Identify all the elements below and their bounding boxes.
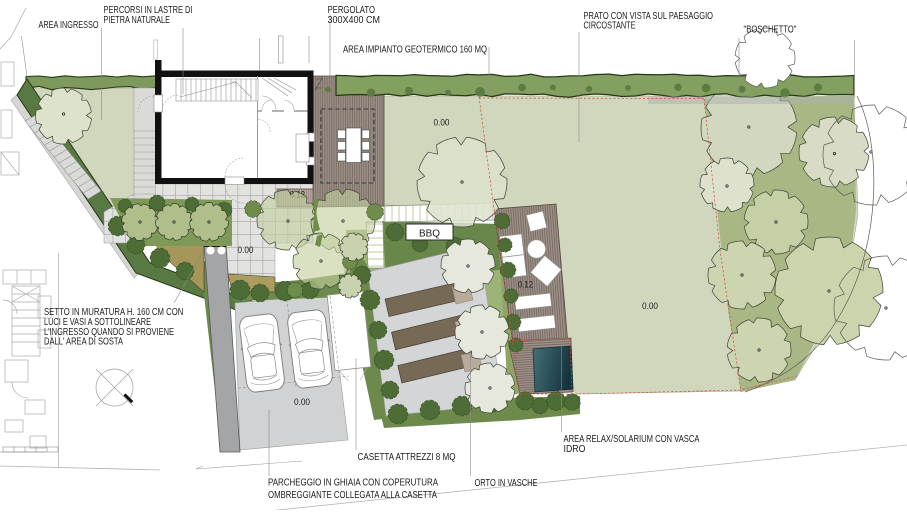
- svg-text:OMBREGGIANTE COLLEGATA ALLA CA: OMBREGGIANTE COLLEGATA ALLA CASETTA: [268, 490, 437, 501]
- svg-text:0.12: 0.12: [518, 280, 533, 290]
- svg-text:"BOSCHETTO": "BOSCHETTO": [744, 25, 797, 36]
- svg-text:0.00: 0.00: [238, 245, 254, 255]
- svg-text:ORTO IN VASCHE: ORTO IN VASCHE: [475, 478, 538, 489]
- svg-text:0.00: 0.00: [434, 118, 450, 128]
- svg-text:AREA INGRESSO: AREA INGRESSO: [39, 20, 99, 31]
- svg-text:DALL' AREA DI SOSTA: DALL' AREA DI SOSTA: [44, 337, 123, 348]
- svg-text:300X400 CM: 300X400 CM: [328, 15, 381, 26]
- svg-text:0.00: 0.00: [294, 397, 310, 407]
- svg-text:0.00: 0.00: [642, 301, 658, 311]
- svg-text:PARCHEGGIO IN GHIAIA CON COPER: PARCHEGGIO IN GHIAIA CON COPERUTURA: [268, 478, 438, 489]
- svg-text:BBQ: BBQ: [419, 229, 440, 240]
- svg-text:CASETTA ATTREZZI 8 MQ: CASETTA ATTREZZI 8 MQ: [358, 452, 456, 463]
- svg-text:PIETRA NATURALE: PIETRA NATURALE: [104, 15, 171, 26]
- svg-text:IDRO: IDRO: [564, 444, 586, 455]
- svg-text:AREA IMPIANTO GEOTERMICO 160 M: AREA IMPIANTO GEOTERMICO 160 MQ: [343, 45, 487, 56]
- svg-text:CIRCOSTANTE: CIRCOSTANTE: [584, 21, 636, 32]
